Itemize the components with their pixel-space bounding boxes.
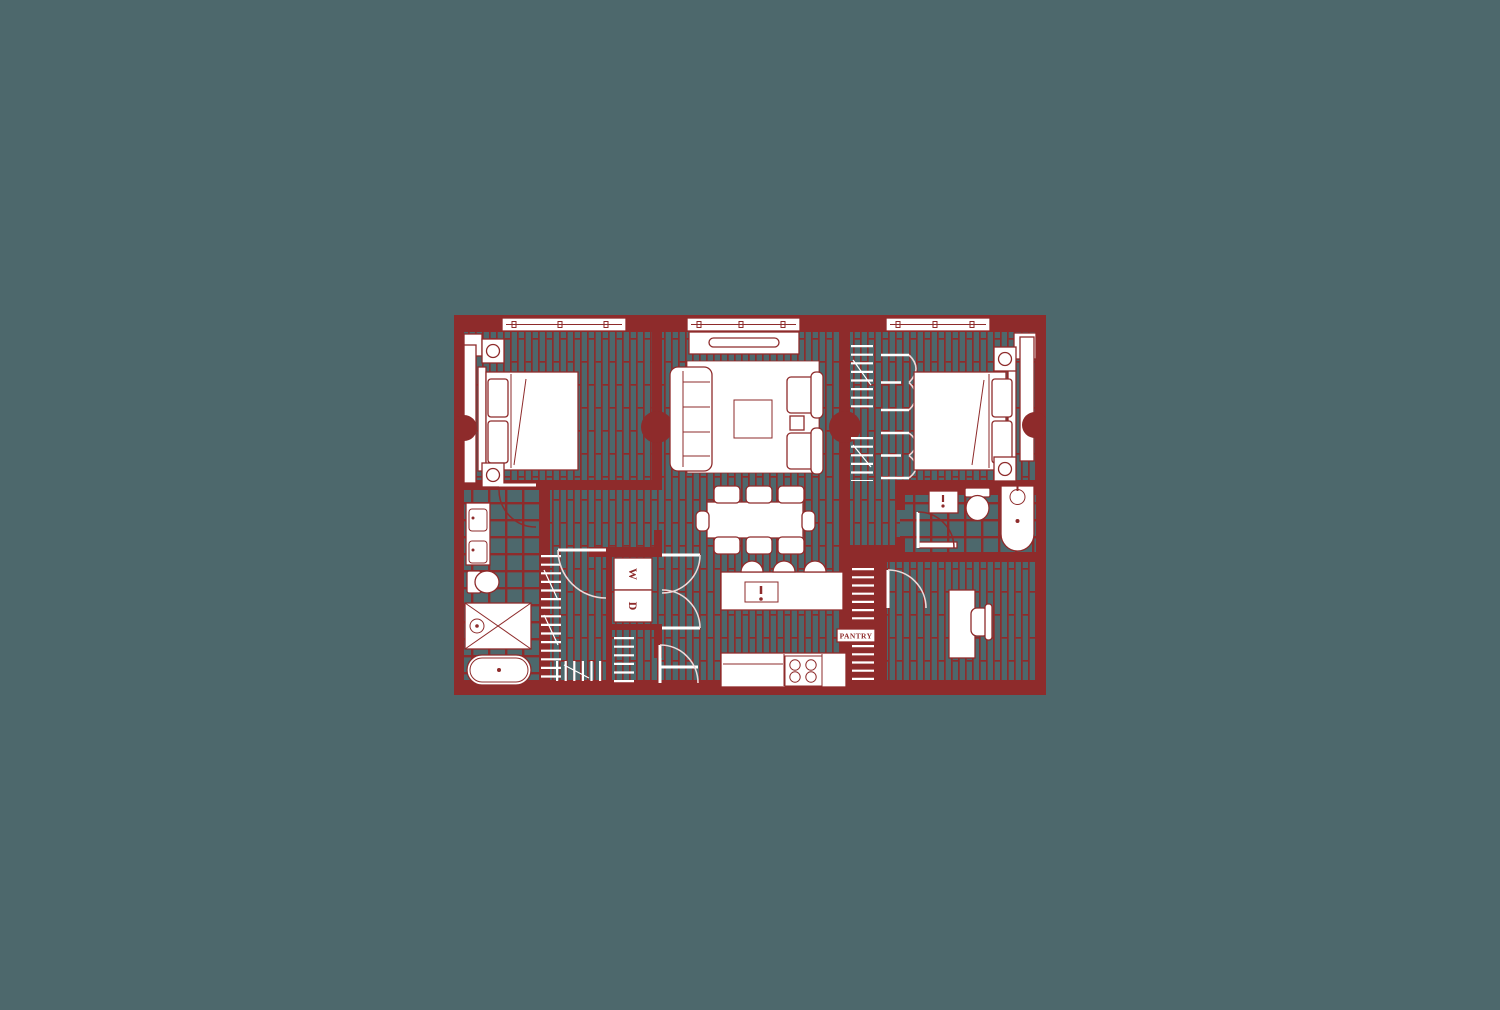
toilet (965, 488, 990, 521)
pantry-label: PANTRY (840, 632, 873, 641)
nightstand (994, 457, 1016, 481)
lamp-icon (999, 353, 1012, 366)
faucet-icon (472, 517, 475, 520)
nightstand (482, 463, 504, 487)
pillow (488, 379, 508, 417)
floor-plan-drawing: PANTRY W D (454, 315, 1046, 695)
desk-chair (971, 604, 992, 640)
vanity (929, 491, 958, 513)
dining-chair (714, 486, 740, 503)
tv-icon (709, 338, 779, 347)
window-right (886, 318, 990, 331)
double-vanity (466, 503, 490, 565)
windows (502, 318, 990, 331)
armchair (787, 428, 823, 474)
dining-chair (746, 486, 772, 503)
dining-chair (746, 537, 772, 554)
shower (465, 603, 531, 649)
dining-table (707, 502, 803, 538)
toilet-bowl (475, 571, 499, 593)
window-left (502, 318, 626, 331)
side-table (790, 416, 804, 430)
lamp-icon (487, 469, 500, 482)
laundry: W D (614, 558, 652, 622)
dining-chair (802, 511, 815, 531)
washer-label: W (626, 568, 640, 580)
armchair (787, 372, 823, 418)
window-center (687, 318, 800, 331)
nightstand (482, 339, 504, 363)
faucet-icon (472, 549, 475, 552)
dining-chair (696, 511, 709, 531)
nightstand (994, 347, 1016, 371)
dining-area (696, 486, 815, 554)
pillow (992, 379, 1012, 417)
dryer-label: D (626, 602, 640, 611)
lamp-icon (999, 463, 1012, 476)
bathtub (467, 655, 531, 685)
toilet (467, 571, 499, 593)
page-background: PANTRY W D (0, 0, 1500, 1010)
kitchen-island (721, 572, 843, 610)
drain-icon (1016, 519, 1020, 523)
bed-right (914, 372, 1012, 470)
bed-left (486, 372, 578, 470)
dining-chair (778, 486, 804, 503)
lamp-icon (487, 345, 500, 358)
floor-plan: PANTRY W D (454, 315, 1046, 695)
toilet-bowl (966, 496, 989, 521)
bathtub (1001, 486, 1034, 551)
dining-chair (778, 537, 804, 554)
drain-icon (497, 668, 501, 672)
column (641, 411, 673, 443)
pillow (488, 421, 508, 463)
sofa (670, 367, 712, 471)
bench (919, 542, 957, 548)
headboard (478, 367, 486, 471)
accent-wall (1020, 337, 1034, 461)
dining-chair (714, 537, 740, 554)
media-console (689, 332, 799, 354)
accent-wall (464, 345, 476, 483)
kitchen-counter (721, 653, 846, 687)
